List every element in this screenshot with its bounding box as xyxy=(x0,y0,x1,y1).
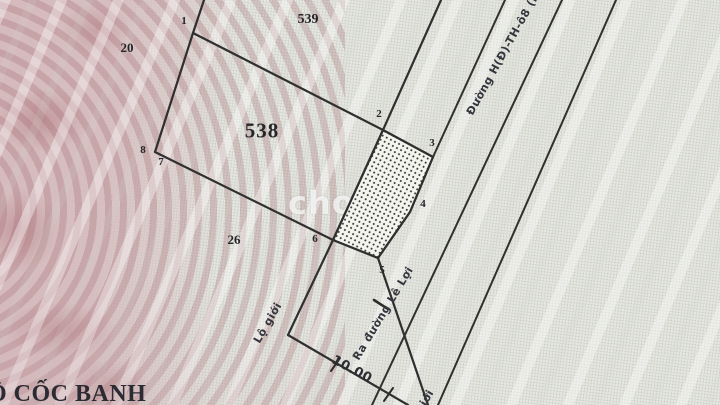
vertex-7-label: 7 xyxy=(158,156,164,168)
cadastral-sketch-photo: chợ xyxy=(0,0,720,405)
boundary-line-7-6 xyxy=(155,152,333,240)
vertex-3-label: 3 xyxy=(429,137,435,149)
vertex-1-label: 1 xyxy=(181,15,187,27)
area-20-label: 20 xyxy=(121,40,134,56)
vertex-2-label: 2 xyxy=(376,108,382,120)
area-26-label: 26 xyxy=(228,232,241,248)
vertex-5-label: 5 xyxy=(379,264,385,276)
place-name-text: Ồ CỐC BANH xyxy=(0,381,146,405)
vertex-4-label: 4 xyxy=(420,198,426,210)
parcel-538-label: 538 xyxy=(245,119,280,144)
road-edge-line-3 xyxy=(438,0,616,405)
boundary-line-west xyxy=(155,0,204,152)
boundary-line-1-2 xyxy=(193,33,383,130)
parcel-539-label: 539 xyxy=(298,12,319,28)
vertex-8-label: 8 xyxy=(140,144,146,156)
vertex-6-label: 6 xyxy=(312,233,318,245)
